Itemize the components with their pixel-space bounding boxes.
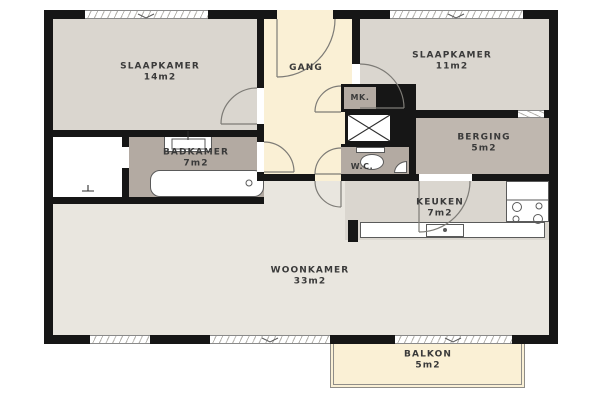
window-woonkamer-left <box>90 335 150 344</box>
window-slaapkamer-11 <box>390 10 523 19</box>
counter-wall-stub <box>348 220 358 242</box>
wall-gang-bottom <box>257 174 315 181</box>
toilet-cistern <box>356 147 385 153</box>
door-opening-closet <box>122 147 129 168</box>
room-laundry-closet-floor <box>49 133 126 201</box>
wall-berging-left <box>409 110 416 181</box>
wall-outer-bottom <box>150 335 210 344</box>
washbasin <box>164 136 212 152</box>
wall-slaapkamer11-left <box>352 10 360 64</box>
room-gang-floor <box>264 14 352 181</box>
duct-shaft <box>345 112 393 144</box>
window-slaapkamer-14 <box>85 10 208 19</box>
room-meterkast <box>341 84 379 112</box>
door-opening-slaapkamer-11 <box>352 64 360 84</box>
entrance-door-opening <box>277 10 333 19</box>
kitchen-counter-side <box>506 181 549 222</box>
wall-outer-top <box>333 10 390 19</box>
window-woonkamer-center <box>210 335 330 344</box>
bathtub <box>150 170 264 197</box>
toilet-bowl <box>360 154 384 170</box>
wall-closet-right <box>122 137 129 147</box>
wall-slaapkamer14-bottom <box>44 130 264 137</box>
wall-outer-top <box>208 10 277 19</box>
door-opening-berging <box>419 174 472 181</box>
room-berging-floor <box>409 110 549 177</box>
kitchen-sink <box>426 224 464 237</box>
wall-badkamer-bottom <box>44 197 264 204</box>
window-berging <box>518 110 544 118</box>
floor-plan: SLAAPKAMER 14m2 GANG SLAAPKAMER 11m2 MK.… <box>0 0 600 400</box>
wall-keuken-top <box>472 174 554 181</box>
wall-berging-top <box>409 110 518 118</box>
wall-outer-bottom <box>330 335 395 344</box>
door-opening-badkamer <box>257 142 264 172</box>
balcony-door-window <box>395 335 512 344</box>
wall-berging-top <box>544 110 554 118</box>
door-opening-slaapkamer-14 <box>257 88 264 124</box>
wall-outer-left <box>44 10 53 344</box>
room-slaapkamer-14-floor <box>49 14 264 137</box>
wall-gang-left <box>257 10 264 88</box>
balcony-railing <box>330 344 525 388</box>
